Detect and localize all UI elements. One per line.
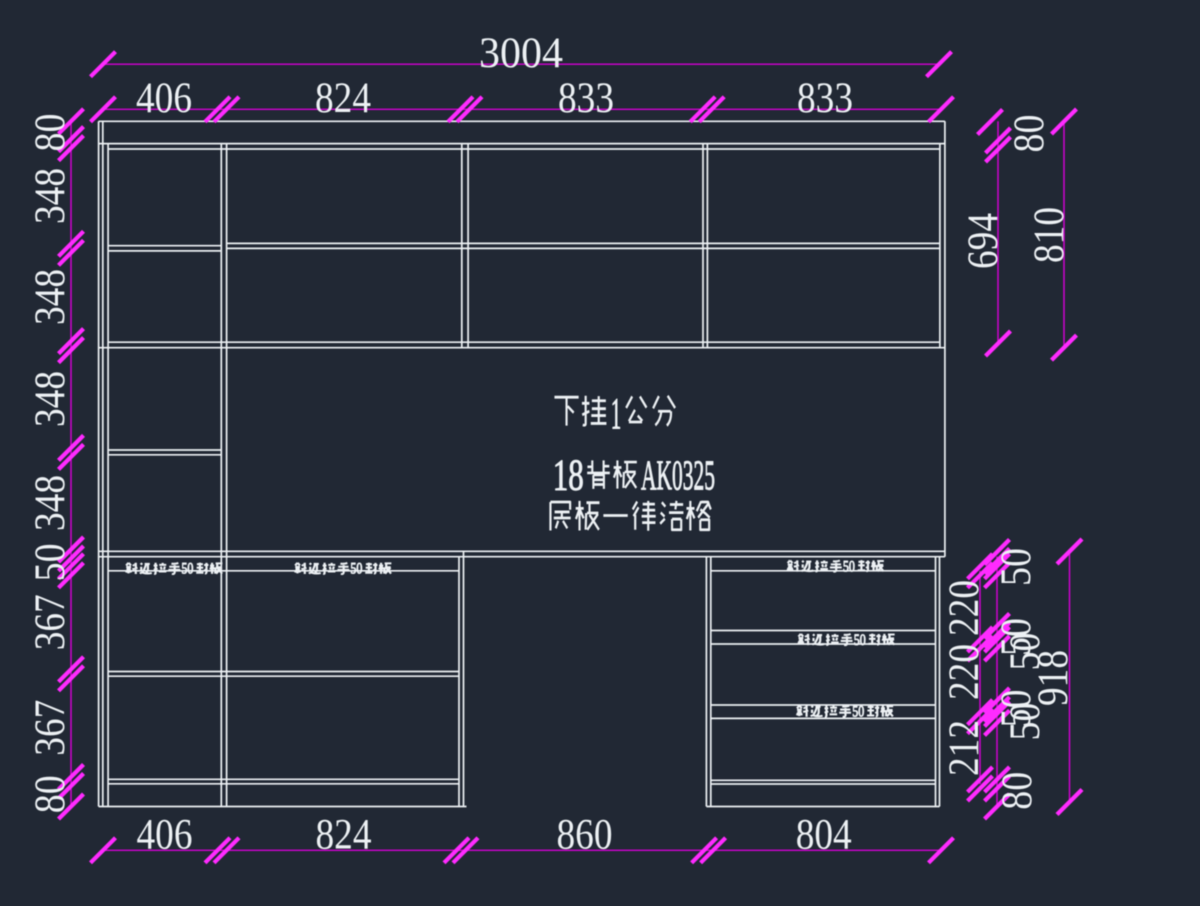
svg-text:AK0325: AK0325	[641, 453, 715, 499]
svg-text:3004: 3004	[479, 30, 563, 77]
svg-text:80: 80	[994, 772, 1041, 810]
svg-text:367: 367	[27, 594, 74, 650]
svg-text:367: 367	[27, 700, 74, 756]
svg-text:824: 824	[316, 812, 372, 859]
svg-text:406: 406	[136, 75, 192, 122]
svg-text:348: 348	[27, 475, 74, 531]
svg-text:1: 1	[611, 389, 622, 438]
svg-text:50: 50	[1002, 703, 1049, 741]
svg-text:833: 833	[558, 75, 614, 122]
svg-text:810: 810	[1026, 207, 1073, 263]
svg-text:833: 833	[797, 75, 853, 122]
svg-text:220: 220	[941, 644, 988, 700]
svg-text:348: 348	[27, 168, 74, 224]
svg-text:348: 348	[27, 269, 74, 325]
svg-text:804: 804	[796, 812, 852, 859]
svg-text:918: 918	[1030, 650, 1077, 706]
svg-text:80: 80	[27, 114, 74, 152]
svg-text:348: 348	[27, 371, 74, 427]
svg-text:694: 694	[960, 213, 1007, 269]
svg-text:406: 406	[137, 812, 193, 859]
svg-text:80: 80	[27, 775, 74, 813]
svg-text:50: 50	[27, 543, 74, 581]
svg-text:80: 80	[1006, 115, 1053, 153]
svg-text:860: 860	[557, 812, 613, 859]
svg-text:50: 50	[993, 548, 1040, 586]
svg-text:18: 18	[553, 450, 584, 499]
svg-text:220: 220	[941, 580, 988, 636]
svg-text:824: 824	[315, 75, 371, 122]
svg-text:212: 212	[941, 720, 988, 776]
